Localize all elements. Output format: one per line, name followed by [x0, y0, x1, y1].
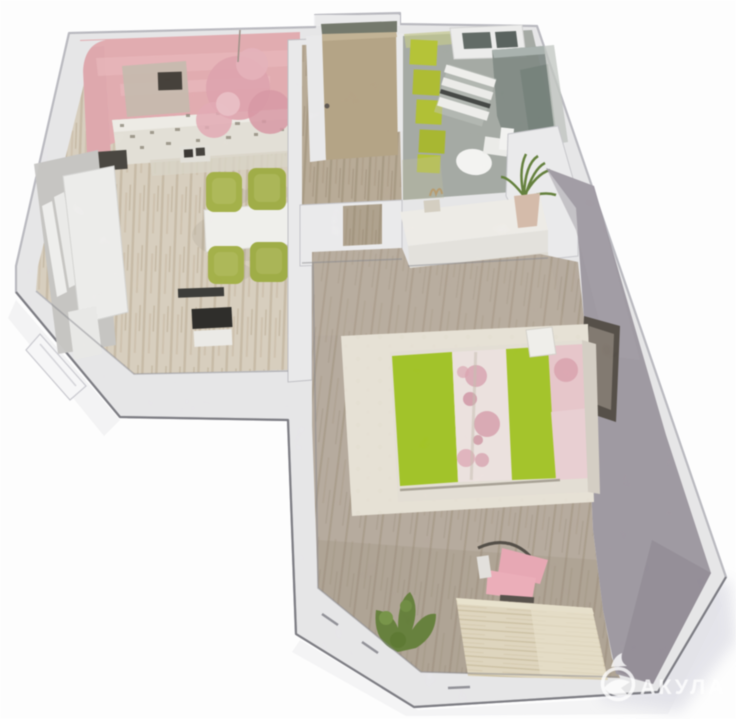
svg-text:АКУЛА: АКУЛА	[640, 675, 726, 699]
